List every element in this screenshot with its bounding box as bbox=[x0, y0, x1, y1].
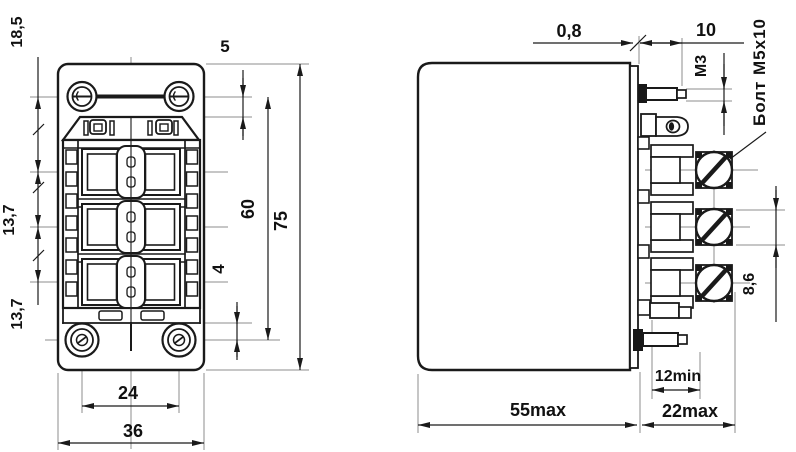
dim-18-5: 18,5 bbox=[9, 16, 26, 47]
mounting-screw-bottom-right bbox=[163, 324, 196, 357]
dim-36: 36 bbox=[123, 421, 143, 441]
relay-dimension-drawing: 18,5 13,7 13,7 5 60 75 4 24 36 bbox=[0, 0, 796, 452]
blade-base-bottom bbox=[633, 329, 643, 351]
dim-60: 60 bbox=[238, 199, 258, 219]
mounting-screw-bottom-left bbox=[66, 324, 99, 357]
plate-bump-3 bbox=[638, 245, 649, 258]
dim-5: 5 bbox=[220, 37, 229, 56]
mounting-screw-top-left bbox=[68, 82, 97, 111]
dim-12min: 12min bbox=[655, 368, 701, 385]
blade-terminal-top bbox=[646, 88, 686, 100]
dim-13-7-lower: 13,7 bbox=[9, 298, 26, 329]
mounting-screw-top-right bbox=[165, 82, 194, 111]
dim-22max: 22max bbox=[662, 401, 718, 421]
dim-24: 24 bbox=[118, 383, 138, 403]
dim-m3: M3 bbox=[693, 55, 710, 77]
technical-drawing-page: 18,5 13,7 13,7 5 60 75 4 24 36 bbox=[0, 0, 796, 452]
tab-terminal-upper bbox=[641, 114, 688, 136]
dim-55max: 55max bbox=[510, 400, 566, 420]
dim-10: 10 bbox=[696, 20, 716, 40]
dim-4: 4 bbox=[209, 264, 228, 274]
side-view: 0,8 10 M3 Болт M5x10 8,6 12min 55max 22m… bbox=[418, 18, 785, 433]
dim-13-7-upper: 13,7 bbox=[1, 204, 18, 235]
dim-75: 75 bbox=[271, 211, 291, 231]
plate-bump-2 bbox=[638, 190, 649, 203]
dim-8-6: 8,6 bbox=[741, 273, 758, 295]
plate-bump-1 bbox=[638, 137, 649, 149]
dim-0-8: 0,8 bbox=[556, 21, 581, 41]
front-view: 18,5 13,7 13,7 5 60 75 4 24 36 bbox=[1, 16, 309, 450]
blade-terminal-bottom bbox=[643, 333, 687, 346]
terminal-plate bbox=[630, 66, 638, 368]
side-body-outline bbox=[418, 63, 630, 370]
callout-bolt-m5x10: Болт M5x10 bbox=[750, 18, 769, 126]
